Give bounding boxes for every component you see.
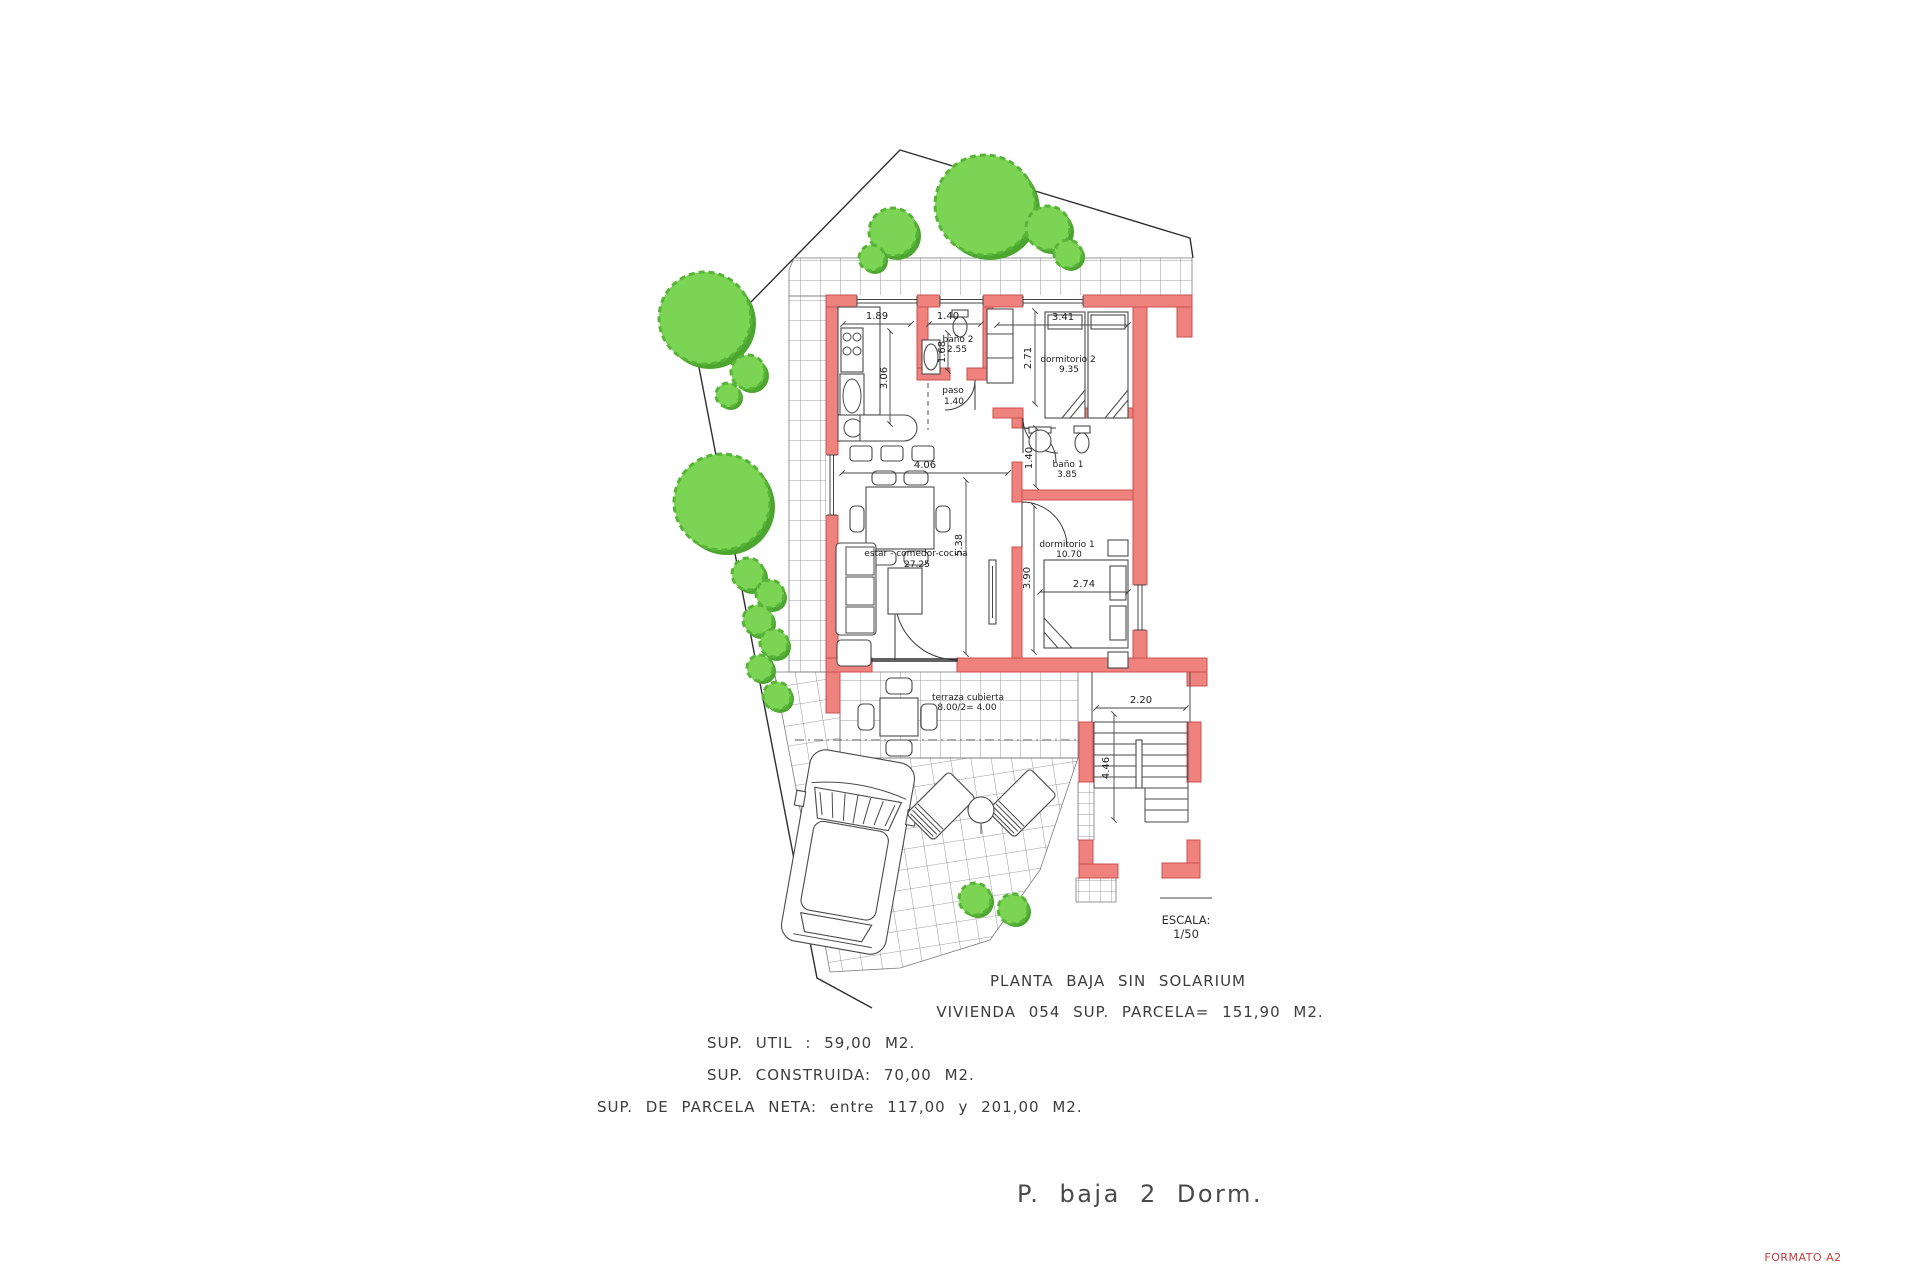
label-bath2: baño 2	[942, 335, 973, 345]
sup-construida: SUP. CONSTRUIDA: 70,00 M2.	[707, 1066, 975, 1084]
label-living: estar - comedor-cocina	[864, 549, 967, 559]
dim-bedroom2-width: 3.41	[1052, 312, 1074, 323]
area-bedroom1: 10.70	[1056, 550, 1082, 560]
dim-landing-width: 2.20	[1130, 695, 1152, 706]
area-bath1: 3.85	[1057, 470, 1077, 480]
plan-title: PLANTA BAJA SIN SOLARIUM	[990, 972, 1246, 990]
coffee-table	[888, 568, 922, 614]
label-bath1: baño 1	[1052, 460, 1083, 470]
armchair	[837, 640, 871, 666]
dim-kitchen-width: 1.89	[866, 311, 888, 322]
dim-kitchen-depth: 3.06	[879, 367, 890, 389]
sup-parcela-neta: SUP. DE PARCELA NETA: entre 117,00 y 201…	[597, 1098, 1083, 1116]
scale-value: 1/50	[1173, 927, 1199, 941]
shrub	[998, 894, 1031, 927]
area-bath2: 2.55	[947, 345, 967, 355]
bath1-fixtures	[1029, 426, 1090, 453]
dim-bath2-width: 1.40	[937, 311, 959, 322]
dim-bedroom1-depth: 3.90	[1022, 567, 1033, 589]
label-terrace: terraza cubierta	[932, 693, 1004, 703]
patio-left-strip	[789, 296, 826, 672]
area-paso: 1.40	[944, 397, 964, 407]
dim-stairs-depth: 4.46	[1101, 757, 1112, 779]
area-terrace: 8.00/2= 4.00	[937, 703, 997, 713]
floor-plan-drawing: 1.89 1.40 3.41 3.06 1.68 2.71 4.06 5.38 …	[0, 0, 1920, 1280]
title-block: PLANTA BAJA SIN SOLARIUM VIVIENDA 054 SU…	[597, 972, 1842, 1264]
stair-side-tiles	[1078, 782, 1094, 840]
bath2-window	[940, 295, 983, 307]
dim-bath1-depth: 1.40	[1024, 447, 1035, 469]
dim-living-width: 4.06	[914, 460, 936, 471]
sheet-format: FORMATO A2	[1764, 1251, 1841, 1264]
floor-plan-sheet: 1.89 1.40 3.41 3.06 1.68 2.71 4.06 5.38 …	[0, 0, 1920, 1280]
tree	[935, 155, 1040, 260]
bedroom1-window	[1133, 585, 1147, 630]
stair-lower-tiles	[1076, 878, 1116, 902]
bedroom2-window	[1023, 295, 1083, 307]
label-bedroom2: dormitorio 2	[1040, 355, 1095, 365]
plan-name: P. baja 2 Dorm.	[1017, 1180, 1263, 1208]
scale-note: ESCALA: 1/50	[1162, 913, 1211, 941]
kitchen-window	[857, 295, 917, 307]
area-bedroom2: 9.35	[1059, 365, 1079, 375]
label-bedroom1: dormitorio 1	[1039, 540, 1094, 550]
terrace-paving	[840, 672, 1078, 758]
living-window	[826, 455, 838, 515]
plan-subtitle: VIVIENDA 054 SUP. PARCELA= 151,90 M2.	[936, 1003, 1323, 1021]
patio-top-band	[789, 258, 1192, 296]
dim-bedroom2-depth: 2.71	[1023, 347, 1034, 369]
shrub	[1054, 240, 1085, 271]
sup-util: SUP. UTIL : 59,00 M2.	[707, 1034, 915, 1052]
label-paso: paso	[942, 386, 964, 396]
tree	[674, 454, 775, 555]
tree	[659, 272, 756, 369]
garden-side-table	[968, 797, 994, 823]
dim-bedroom1-width: 2.74	[1073, 579, 1095, 590]
scale-label: ESCALA:	[1162, 913, 1211, 927]
area-living: 27.25	[904, 560, 930, 570]
